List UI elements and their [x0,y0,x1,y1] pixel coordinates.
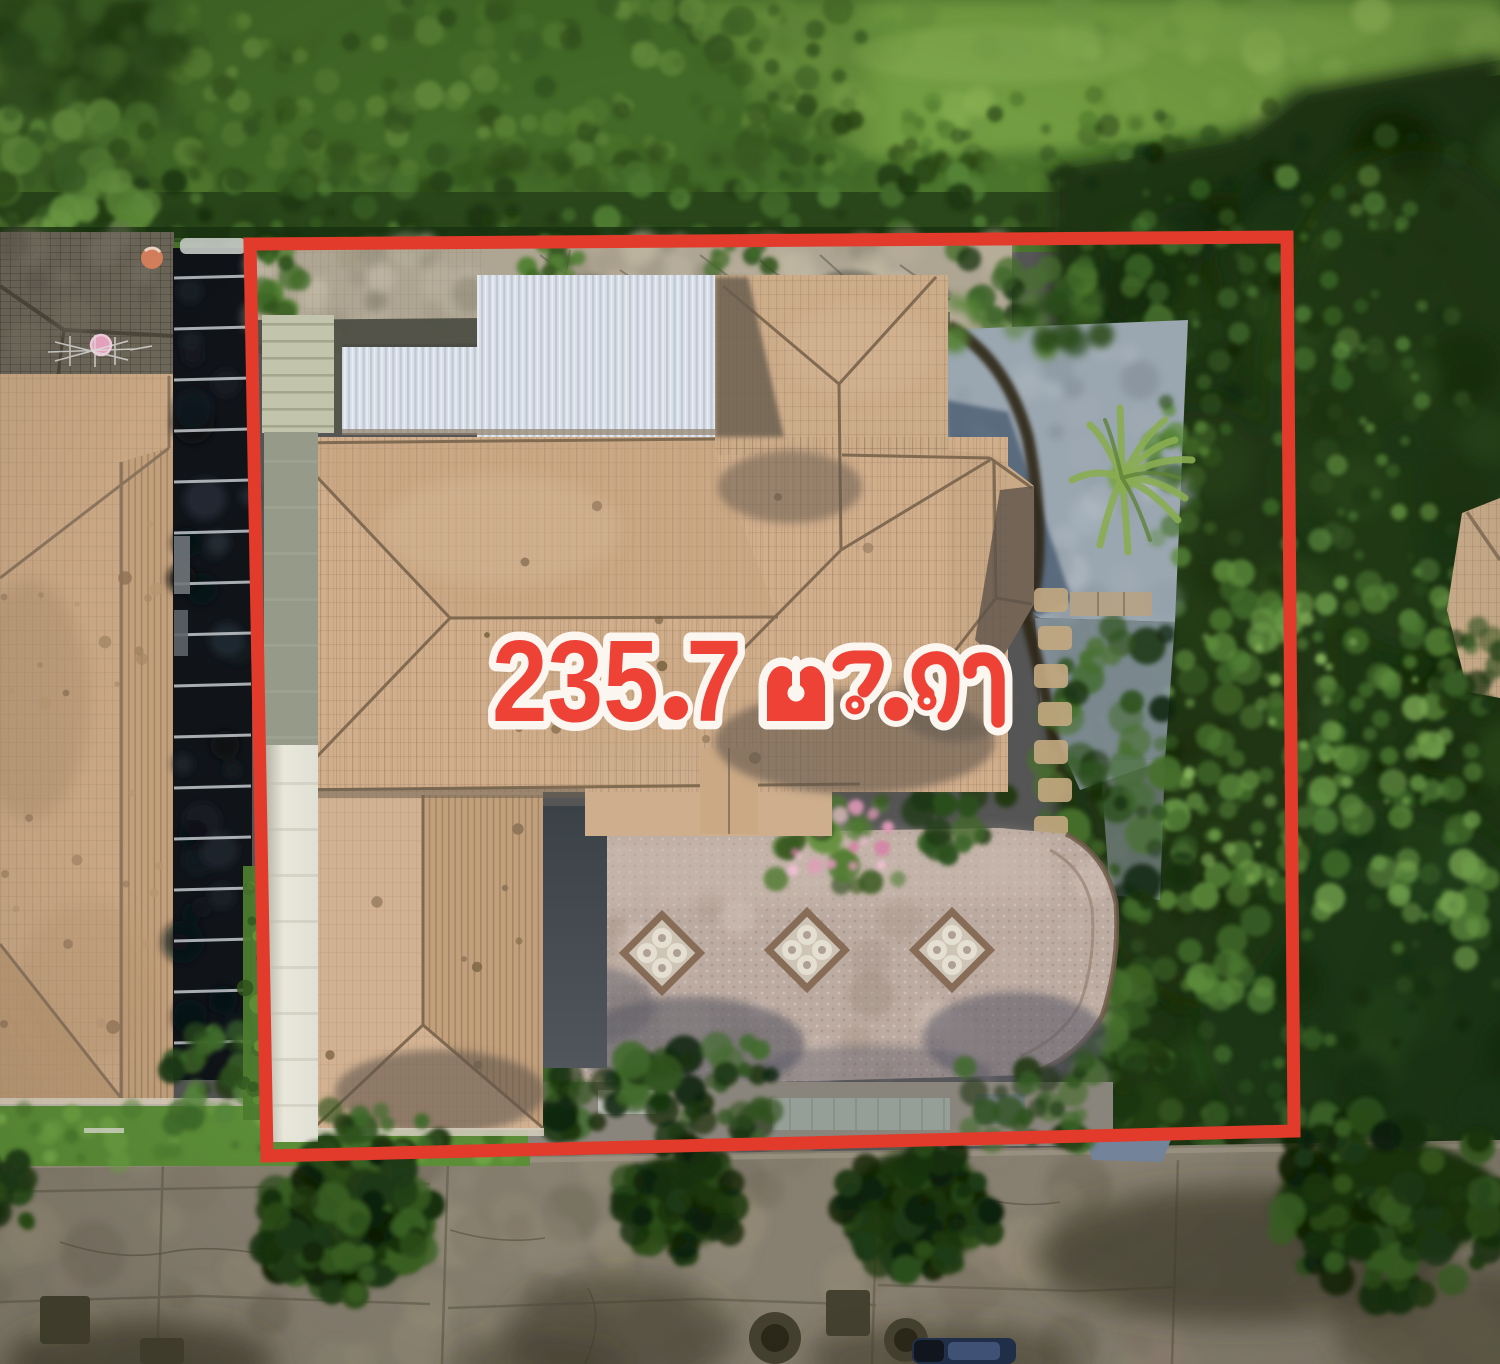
svg-text:235.7: 235.7 [492,616,742,746]
